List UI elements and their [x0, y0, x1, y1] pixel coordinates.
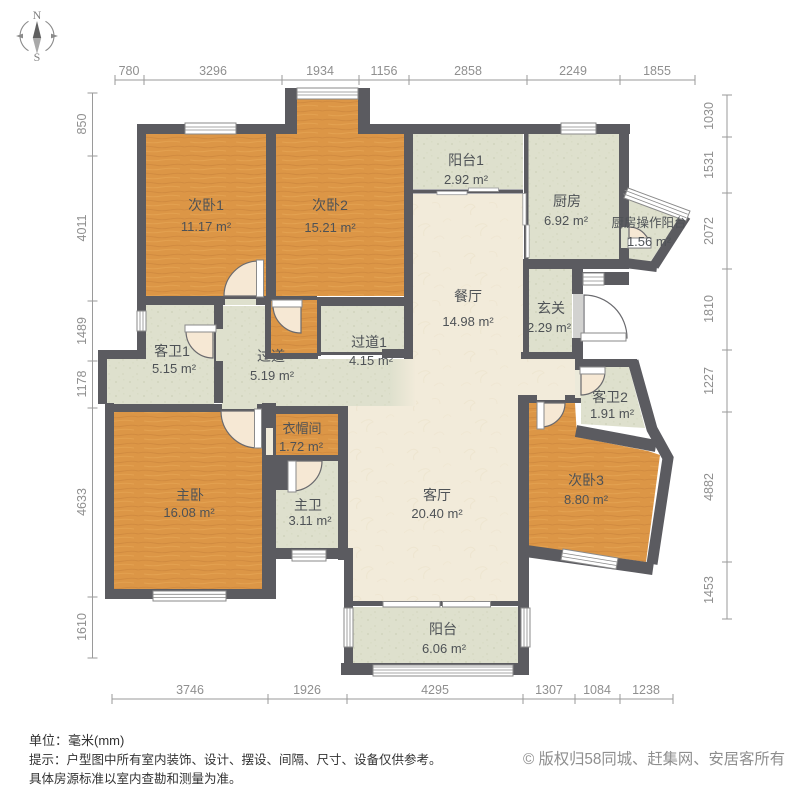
svg-text:N: N: [33, 8, 42, 22]
svg-text:6.92 m²: 6.92 m²: [544, 213, 589, 228]
svg-text:1531: 1531: [702, 151, 716, 179]
svg-text:780: 780: [119, 64, 140, 78]
svg-text:1610: 1610: [75, 613, 89, 641]
svg-text:客厅: 客厅: [423, 487, 451, 503]
svg-text:主卧: 主卧: [176, 487, 204, 503]
svg-text:次卧1: 次卧1: [188, 197, 224, 213]
svg-text:4295: 4295: [421, 683, 449, 697]
svg-text:客卫1: 客卫1: [154, 343, 190, 359]
svg-text:4882: 4882: [702, 473, 716, 501]
svg-text:玄关: 玄关: [537, 300, 565, 316]
svg-text:1453: 1453: [702, 576, 716, 604]
svg-text:1084: 1084: [583, 683, 611, 697]
svg-text:1238: 1238: [632, 683, 660, 697]
svg-text:1307: 1307: [535, 683, 563, 697]
svg-text:次卧3: 次卧3: [568, 472, 604, 488]
svg-text:16.08 m²: 16.08 m²: [163, 505, 215, 520]
svg-text:3746: 3746: [176, 683, 204, 697]
svg-text:2.92 m²: 2.92 m²: [444, 172, 489, 187]
svg-text:1934: 1934: [306, 64, 334, 78]
svg-text:1855: 1855: [643, 64, 671, 78]
svg-text:1.91 m²: 1.91 m²: [590, 406, 635, 421]
svg-text:15.21 m²: 15.21 m²: [304, 220, 356, 235]
svg-text:1030: 1030: [702, 102, 716, 130]
svg-text:提示：户型图中所有室内装饰、设计、摆设、间隔、尺寸、设备仅供: 提示：户型图中所有室内装饰、设计、摆设、间隔、尺寸、设备仅供参考。: [29, 752, 442, 767]
svg-text:具体房源标准以室内查勘和测量为准。: 具体房源标准以室内查勘和测量为准。: [29, 771, 242, 786]
svg-text:1.72 m²: 1.72 m²: [279, 439, 324, 454]
svg-text:1810: 1810: [702, 295, 716, 323]
svg-text:14.98 m²: 14.98 m²: [442, 314, 494, 329]
svg-text:20.40 m²: 20.40 m²: [411, 506, 463, 521]
svg-text:餐厅: 餐厅: [454, 288, 482, 304]
svg-text:单位：毫米(mm): 单位：毫米(mm): [29, 733, 124, 748]
svg-text:2.29 m²: 2.29 m²: [527, 320, 572, 335]
svg-text:次卧2: 次卧2: [312, 197, 348, 213]
svg-text:1.56 m²: 1.56 m²: [627, 234, 672, 249]
svg-text:1227: 1227: [702, 367, 716, 395]
svg-text:1178: 1178: [75, 371, 89, 398]
svg-text:© 版权归58同城、赶集网、安居客所有: © 版权归58同城、赶集网、安居客所有: [523, 751, 785, 768]
svg-text:衣帽间: 衣帽间: [282, 421, 321, 436]
svg-text:2249: 2249: [559, 64, 587, 78]
svg-text:3.11 m²: 3.11 m²: [288, 513, 332, 528]
svg-text:厨房: 厨房: [553, 193, 581, 209]
svg-text:客卫2: 客卫2: [592, 389, 628, 405]
svg-text:1489: 1489: [75, 317, 89, 345]
svg-text:2072: 2072: [702, 217, 716, 245]
svg-text:5.15 m²: 5.15 m²: [152, 361, 197, 376]
svg-text:3296: 3296: [199, 64, 227, 78]
svg-text:主卫: 主卫: [294, 497, 322, 513]
svg-text:厨房操作阳台: 厨房操作阳台: [611, 215, 686, 230]
svg-text:阳台: 阳台: [429, 621, 457, 637]
svg-text:1926: 1926: [293, 683, 321, 697]
svg-text:5.19 m²: 5.19 m²: [250, 368, 295, 383]
svg-text:过道1: 过道1: [351, 334, 387, 350]
svg-text:1156: 1156: [371, 64, 398, 78]
svg-text:6.06 m²: 6.06 m²: [422, 641, 467, 656]
svg-text:4633: 4633: [75, 488, 89, 516]
svg-text:阳台1: 阳台1: [448, 152, 484, 168]
svg-text:2858: 2858: [454, 64, 482, 78]
svg-text:4011: 4011: [75, 215, 89, 242]
svg-text:8.80 m²: 8.80 m²: [564, 492, 609, 507]
svg-text:850: 850: [75, 114, 89, 135]
svg-text:11.17 m²: 11.17 m²: [181, 219, 232, 234]
